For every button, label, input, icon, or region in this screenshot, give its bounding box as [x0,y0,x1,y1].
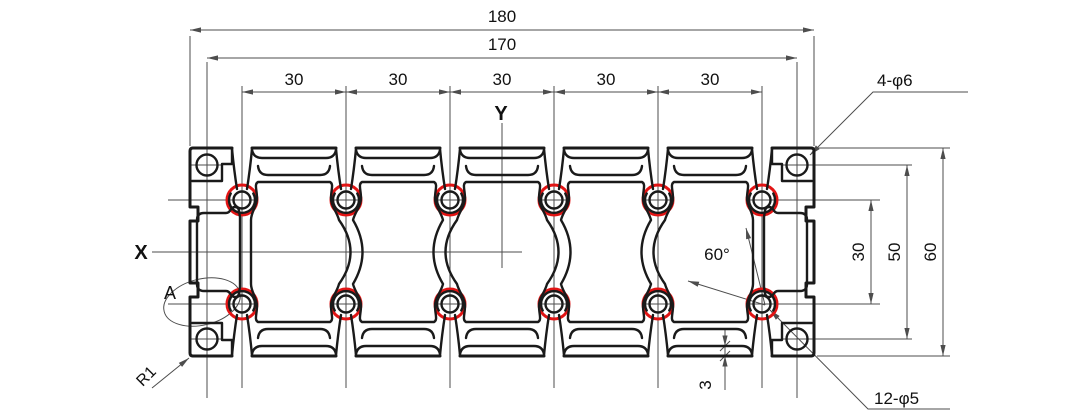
arrow-angle-2 [688,281,699,287]
arrow [868,293,873,304]
dim-slot-pitch: 30 [285,70,304,89]
bottom-chamber-floors [252,346,752,354]
dim-slot-pitch: 30 [701,70,720,89]
arrow [207,55,218,60]
label-y-axis: Y [494,103,508,125]
note-corner-holes: 4-φ6 [877,71,913,90]
arrow [904,165,909,176]
arrow [940,345,945,356]
dim-hole-pitch-width: 170 [488,35,516,54]
arrow [190,27,201,32]
cavity-4 [561,182,651,322]
dim-slot-pitch: 30 [389,70,408,89]
arrow-angle-1 [746,228,751,239]
dim-wall-thickness: 3 [696,380,715,389]
dim-overall-width: 180 [488,7,516,26]
boss-collars-bottom [229,291,775,310]
leader-corner-holes [810,92,968,155]
arrow [751,89,762,94]
arrow [868,200,873,211]
note-screw-holes: 12-φ5 [874,389,919,408]
arrow [904,328,909,339]
dim-corner-hole-spacing: 50 [885,243,904,262]
label-x-axis: X [134,242,148,264]
dim-slot-pitch: 30 [597,70,616,89]
dim-angle: 60° [704,245,730,264]
bottom-bridge-walls [258,329,746,338]
arrow [786,55,797,60]
extrusion-drawing: 180 170 30 30 30 30 30 30 50 60 3 60° 4-… [0,0,1068,417]
dim-overall-height: 60 [921,243,940,262]
right-end-chamber [764,207,807,297]
arrow [242,89,253,94]
drawing-canvas: 180 170 30 30 30 30 30 30 50 60 3 60° 4-… [0,0,1068,417]
arrow [940,148,945,159]
dim-slot-pitch: 30 [493,70,512,89]
arrow [803,27,814,32]
label-detail-a: A [164,283,176,303]
label-corner-radius: R1 [133,363,160,390]
dim-boss-row-spacing: 30 [849,243,868,262]
